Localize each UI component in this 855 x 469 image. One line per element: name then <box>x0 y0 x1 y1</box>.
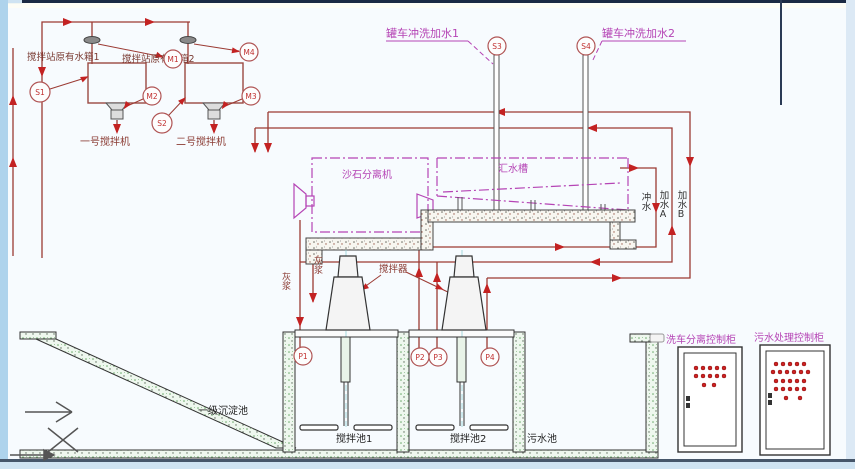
svg-text:M2: M2 <box>146 92 157 101</box>
sedimentation-label: 一级沉淀池 <box>198 404 248 417</box>
motor-m2: M2 <box>143 87 161 105</box>
svg-text:P1: P1 <box>298 352 308 361</box>
pump-p1: P1 <box>294 347 312 365</box>
pool1-cover-slab <box>295 330 398 337</box>
platform-foot-right <box>610 222 620 242</box>
cabinet1-handle <box>686 403 690 408</box>
platform-slab-right <box>428 210 635 222</box>
frame-top-bar <box>0 0 855 3</box>
svg-text:P3: P3 <box>433 353 443 362</box>
small-tag-box <box>650 334 664 342</box>
platform-slab-left <box>306 238 433 250</box>
cabinet2-label: 污水处理控制柜 <box>754 331 824 344</box>
svg-text:P2: P2 <box>415 353 425 362</box>
truck-wash2-label: 罐车冲洗加水2 <box>602 26 675 40</box>
agitator-label: 搅拌器 <box>379 263 408 275</box>
agitator1-motor-body <box>326 277 370 330</box>
wall-sed-pool1 <box>283 332 295 452</box>
standpipe-s4 <box>583 55 588 210</box>
frame-top-highlight <box>0 3 855 8</box>
svg-text:S4: S4 <box>581 42 591 51</box>
pump-p2: P2 <box>411 348 429 366</box>
add-water-b-label: 加水B <box>676 190 688 220</box>
agitator2-shaft-sleeve <box>457 337 466 382</box>
svg-text:M4: M4 <box>243 48 254 57</box>
pump-p3: P3 <box>429 348 447 366</box>
sensor-s2: S2 <box>152 113 172 133</box>
platform-foot-right-base <box>610 240 636 249</box>
wall-pool1-pool2 <box>397 332 409 452</box>
sensor-s4: S4 <box>577 37 595 55</box>
motor-m3: M3 <box>242 87 260 105</box>
svg-text:S1: S1 <box>35 88 45 97</box>
frame-right-strip <box>846 0 855 469</box>
cabinet-wash-separation <box>678 347 742 452</box>
svg-text:M3: M3 <box>245 92 256 101</box>
wall-sewage-right <box>646 341 658 452</box>
sensor-s3: S3 <box>488 37 506 55</box>
frame-bottom-line <box>0 459 855 462</box>
agitator1-paddle-left <box>300 425 338 430</box>
agitator2-paddle-right <box>470 425 508 430</box>
svg-text:S3: S3 <box>492 42 502 51</box>
svg-text:P4: P4 <box>485 353 495 362</box>
agitator1-shaft-sleeve <box>341 337 350 382</box>
slurry-b-label: 灰浆 <box>312 255 323 274</box>
valve-icon <box>84 37 100 44</box>
cabinet2-handle <box>768 400 772 405</box>
pump-p4: P4 <box>481 348 499 366</box>
frame-bottom-strip <box>0 462 855 469</box>
truck-wash1-label: 罐车冲洗加水1 <box>386 26 459 40</box>
cabinet1-label: 洗车分离控制柜 <box>666 333 736 346</box>
motor-m1: M1 <box>164 50 182 68</box>
agitator2-motor-body <box>442 277 486 330</box>
pool-left-cap <box>20 332 56 339</box>
cabinet1-handle <box>686 396 690 401</box>
agitator1-paddle-right <box>354 425 392 430</box>
mixing-pool2-label: 搅拌池2 <box>450 432 486 445</box>
agitator2-paddle-left <box>416 425 454 430</box>
add-water-a-label: 加水A <box>658 190 670 220</box>
slurry-a-label: 灰浆 <box>280 271 291 290</box>
pool-floor <box>20 450 658 458</box>
sensor-s1: S1 <box>30 82 50 102</box>
flush-water-label: 冲水 <box>640 191 652 211</box>
sand-separator-label: 沙石分离机 <box>342 168 392 181</box>
tank1-label: 搅拌站原有水箱1 <box>27 51 100 63</box>
motor-m4: M4 <box>240 43 258 61</box>
valve-icon <box>180 37 196 44</box>
diagram-page: 搅拌站原有水箱1 搅拌站原有水箱2 一号搅拌机 二号搅拌机 罐车冲洗加水1 罐车… <box>0 0 855 469</box>
cabinet2-handle <box>768 393 772 398</box>
water-trough-label: 汇水槽 <box>498 162 528 175</box>
tank2-label: 搅拌站原有水箱2 <box>122 53 195 65</box>
agitator2-motor-top <box>454 256 474 277</box>
agitator1-motor-top <box>338 256 358 277</box>
frame-left-strip <box>0 0 8 469</box>
diagram-canvas: 搅拌站原有水箱1 搅拌站原有水箱2 一号搅拌机 二号搅拌机 罐车冲洗加水1 罐车… <box>0 0 855 469</box>
sewage-pool-label: 污水池 <box>527 432 557 445</box>
mixer1-label: 一号搅拌机 <box>80 135 130 148</box>
svg-text:S2: S2 <box>157 119 167 128</box>
svg-text:M1: M1 <box>167 55 178 64</box>
frame-right-divider <box>780 0 782 105</box>
cabinet-sewage-treatment <box>760 345 830 455</box>
wall-pool2-sewage <box>513 332 525 452</box>
mixer2-label: 二号搅拌机 <box>176 135 226 148</box>
mixing-pool1-label: 搅拌池1 <box>336 432 372 445</box>
pool2-cover-slab <box>409 330 514 337</box>
